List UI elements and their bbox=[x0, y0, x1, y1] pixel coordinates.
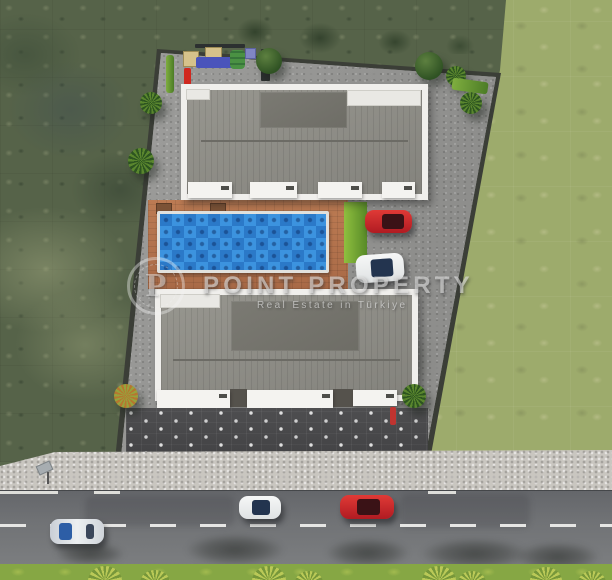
road-patch bbox=[85, 496, 235, 526]
ac-unit bbox=[351, 186, 359, 190]
palm-tree bbox=[140, 92, 162, 114]
road-car-silver bbox=[50, 519, 104, 544]
car-glass bbox=[86, 524, 94, 539]
road-edge-line bbox=[94, 491, 120, 494]
watermark-logo: P bbox=[127, 257, 185, 315]
red-gate bbox=[390, 407, 396, 425]
toy-car bbox=[230, 50, 245, 69]
site-plan-render: P POINT PROPERTY Real Estate in Türkiye bbox=[0, 0, 612, 580]
ac-unit bbox=[221, 186, 229, 190]
watermark-logo-letter: P bbox=[146, 267, 167, 305]
parked-car-red bbox=[365, 210, 412, 233]
balcony bbox=[250, 182, 297, 198]
canopy bbox=[245, 48, 256, 59]
road-edge-line bbox=[0, 491, 58, 494]
car-glass bbox=[357, 499, 380, 515]
swimming-pool bbox=[157, 211, 329, 273]
hedge bbox=[166, 55, 174, 93]
watermark-title: POINT PROPERTY bbox=[203, 272, 474, 300]
balcony bbox=[247, 390, 333, 408]
road-edge-line bbox=[428, 491, 456, 494]
palm-tree bbox=[460, 92, 482, 114]
watermark-subtitle: Real Estate in Türkiye bbox=[257, 300, 407, 311]
grass-strip bbox=[344, 202, 367, 263]
balcony bbox=[157, 390, 230, 408]
road-car-white bbox=[239, 496, 281, 519]
palm-tree bbox=[402, 384, 426, 408]
balcony bbox=[318, 182, 362, 198]
car-glass bbox=[59, 523, 72, 540]
sign-pole bbox=[47, 472, 49, 484]
road-car-red bbox=[340, 495, 394, 519]
balcony bbox=[188, 182, 232, 198]
balcony bbox=[382, 182, 415, 198]
ac-unit bbox=[386, 394, 394, 398]
slide bbox=[184, 68, 191, 85]
ac-unit bbox=[286, 186, 294, 190]
palm-tree bbox=[128, 148, 154, 174]
roof-ridge bbox=[173, 359, 400, 361]
palm-tree bbox=[114, 384, 138, 408]
road-patch bbox=[400, 494, 530, 528]
ac-unit bbox=[404, 186, 412, 190]
entry-recess bbox=[333, 389, 353, 407]
car-glass bbox=[382, 214, 404, 229]
entry-recess bbox=[230, 389, 247, 407]
balcony bbox=[353, 390, 397, 406]
ac-unit bbox=[322, 394, 330, 398]
tree-shadow bbox=[185, 534, 285, 566]
tree bbox=[256, 48, 282, 74]
sidewalk bbox=[0, 450, 612, 492]
roof-terrace bbox=[186, 89, 210, 100]
upper-roof-section bbox=[260, 92, 347, 128]
upper-building bbox=[181, 84, 428, 200]
roof-ridge bbox=[201, 140, 408, 142]
tree bbox=[415, 52, 443, 80]
tree-shadow bbox=[55, 542, 125, 566]
courtyard-pavers bbox=[126, 408, 428, 456]
roof-terrace bbox=[347, 90, 421, 106]
ac-unit bbox=[219, 394, 227, 398]
car-glass bbox=[252, 500, 270, 515]
